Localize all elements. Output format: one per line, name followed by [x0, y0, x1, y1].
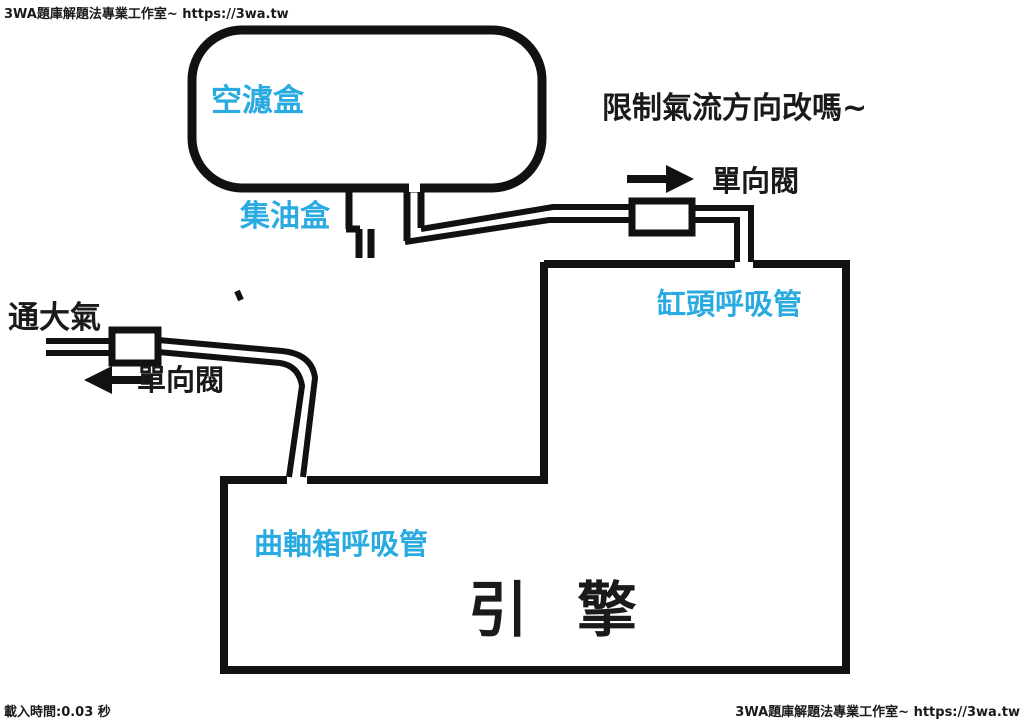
stray-pen-mark [237, 291, 241, 300]
cylinder-head-breather-pipe [405, 207, 751, 262]
diagram-canvas: 3WA題庫解題法專業工作室~ https://3wa.tw 載入時間:0.03 … [0, 0, 1024, 721]
cylinder-head-breather-label: 缸頭呼吸管 [657, 289, 802, 321]
engine-label: 引 擎 [468, 578, 651, 644]
check-valve-left-label: 單向閥 [137, 365, 224, 397]
crankcase-breather-label: 曲軸箱呼吸管 [254, 529, 428, 561]
crankcase-breather-pipe [46, 340, 315, 477]
flow-arrow-right-icon [627, 165, 694, 193]
vent-to-atmosphere-label: 通大氣 [8, 301, 101, 335]
check-valve-left-box [112, 330, 158, 363]
check-valve-right-box [632, 201, 692, 233]
watermark-bottom-right: 3WA題庫解題法專業工作室~ https://3wa.tw [735, 701, 1020, 720]
air-filter-box-label: 空濾盒 [211, 84, 304, 118]
oil-catch-neck [346, 182, 421, 258]
check-valve-right-label: 單向閥 [712, 166, 799, 198]
oil-catch-box-label: 集油盒 [240, 200, 330, 233]
airflow-question-label: 限制氣流方向改嗎~ [602, 92, 867, 125]
watermark-top-left: 3WA題庫解題法專業工作室~ https://3wa.tw [4, 3, 289, 22]
load-time-text: 載入時間:0.03 秒 [4, 701, 111, 720]
